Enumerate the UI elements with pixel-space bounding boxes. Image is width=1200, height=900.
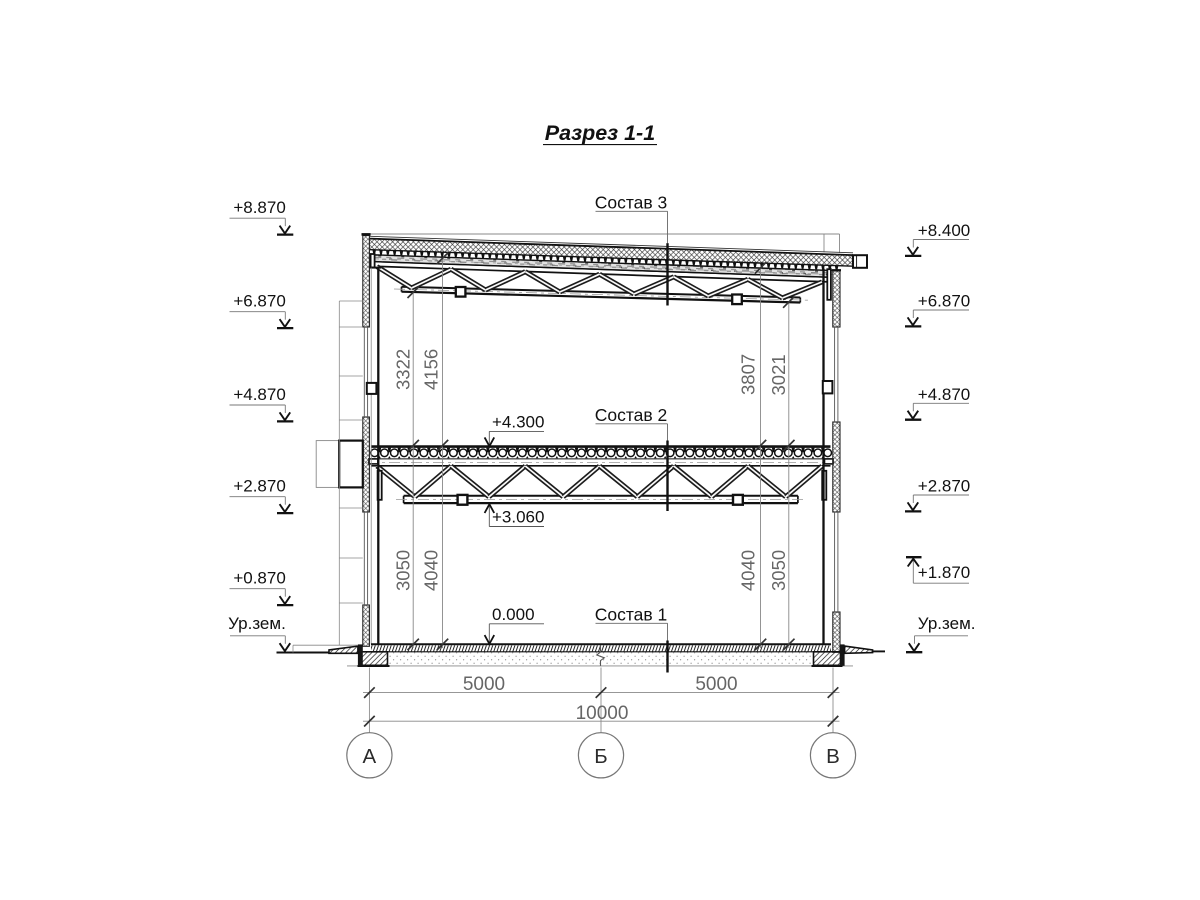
svg-text:+4.300: +4.300: [492, 413, 544, 432]
svg-text:Ур.зем.: Ур.зем.: [228, 614, 286, 633]
svg-text:Б: Б: [594, 745, 607, 768]
svg-text:В: В: [826, 745, 840, 768]
svg-text:Состав 1: Состав 1: [595, 605, 668, 625]
svg-text:5000: 5000: [463, 674, 505, 695]
svg-text:+4.870: +4.870: [233, 385, 285, 404]
svg-text:3021: 3021: [768, 354, 789, 395]
svg-text:+8.870: +8.870: [233, 198, 285, 217]
svg-text:3050: 3050: [393, 550, 414, 591]
svg-text:+2.870: +2.870: [233, 477, 285, 496]
svg-text:Состав 2: Состав 2: [595, 405, 668, 425]
svg-text:+6.870: +6.870: [918, 292, 970, 311]
svg-text:А: А: [363, 745, 377, 768]
svg-text:3050: 3050: [768, 550, 789, 591]
svg-text:10000: 10000: [576, 703, 629, 724]
svg-text:5000: 5000: [695, 674, 737, 695]
svg-text:4156: 4156: [420, 349, 441, 390]
svg-text:Состав 3: Состав 3: [595, 193, 668, 213]
svg-text:+6.870: +6.870: [233, 292, 285, 311]
svg-text:+3.060: +3.060: [492, 508, 544, 527]
svg-text:3807: 3807: [738, 354, 759, 395]
svg-text:+0.870: +0.870: [233, 569, 285, 588]
svg-text:Ур.зем.: Ур.зем.: [918, 614, 976, 633]
svg-text:+1.870: +1.870: [918, 563, 970, 582]
svg-text:+8.400: +8.400: [918, 221, 970, 240]
svg-text:+2.870: +2.870: [918, 477, 970, 496]
svg-text:3322: 3322: [393, 349, 414, 390]
svg-text:Разрез 1-1: Разрез 1-1: [545, 121, 655, 145]
svg-text:4040: 4040: [738, 550, 759, 591]
svg-text:+4.870: +4.870: [918, 385, 970, 404]
svg-text:0.000: 0.000: [492, 605, 535, 624]
svg-text:4040: 4040: [420, 550, 441, 591]
